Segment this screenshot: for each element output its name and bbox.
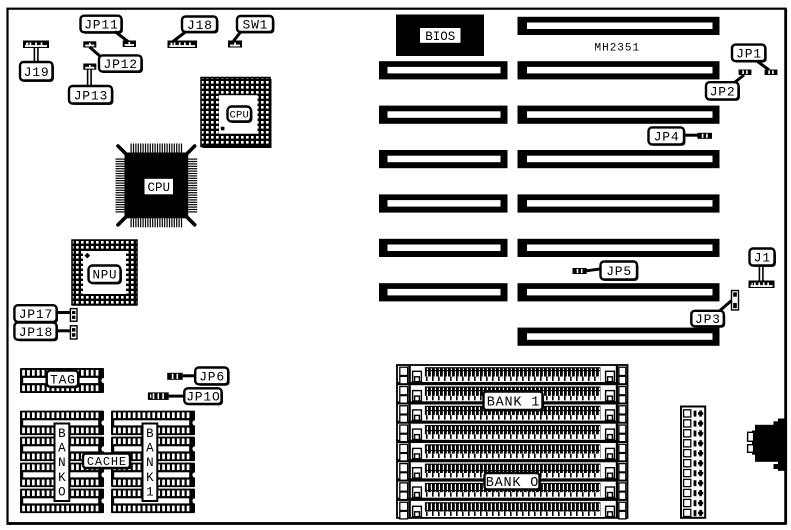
svg-text:J18: J18: [187, 18, 213, 33]
svg-text:O: O: [58, 485, 66, 499]
svg-text:K: K: [58, 471, 66, 485]
svg-text:BANK O: BANK O: [486, 476, 539, 491]
svg-text:N: N: [146, 456, 154, 470]
svg-text:JP1: JP1: [736, 46, 762, 61]
svg-text:A: A: [146, 442, 154, 456]
svg-text:NPU: NPU: [92, 269, 117, 283]
svg-text:MH2351: MH2351: [595, 43, 641, 55]
svg-text:CPU: CPU: [147, 181, 170, 195]
svg-text:JP4: JP4: [654, 130, 680, 145]
svg-text:N: N: [58, 456, 66, 470]
svg-text:TAG: TAG: [50, 372, 76, 387]
svg-text:SW1: SW1: [242, 18, 268, 33]
svg-text:1: 1: [146, 485, 154, 499]
svg-text:J1: J1: [754, 251, 771, 266]
svg-text:CACHE: CACHE: [87, 455, 127, 469]
svg-text:B: B: [146, 427, 154, 441]
svg-text:JP17: JP17: [19, 307, 53, 322]
svg-text:A: A: [58, 442, 66, 456]
svg-text:JP13: JP13: [74, 88, 108, 103]
svg-text:JP1O: JP1O: [186, 390, 220, 405]
svg-text:JP18: JP18: [19, 325, 53, 340]
svg-text:JP11: JP11: [84, 18, 118, 33]
svg-text:JP12: JP12: [103, 57, 137, 72]
svg-text:CPU: CPU: [230, 110, 250, 122]
svg-text:JP3: JP3: [695, 312, 721, 327]
svg-text:JP5: JP5: [606, 264, 632, 279]
svg-text:JP2: JP2: [710, 84, 736, 99]
svg-text:BANK 1: BANK 1: [487, 396, 540, 411]
svg-text:BIOS: BIOS: [425, 30, 455, 44]
svg-text:B: B: [58, 427, 66, 441]
svg-text:JP6: JP6: [199, 369, 225, 384]
svg-text:J19: J19: [24, 65, 50, 80]
svg-text:K: K: [146, 471, 154, 485]
